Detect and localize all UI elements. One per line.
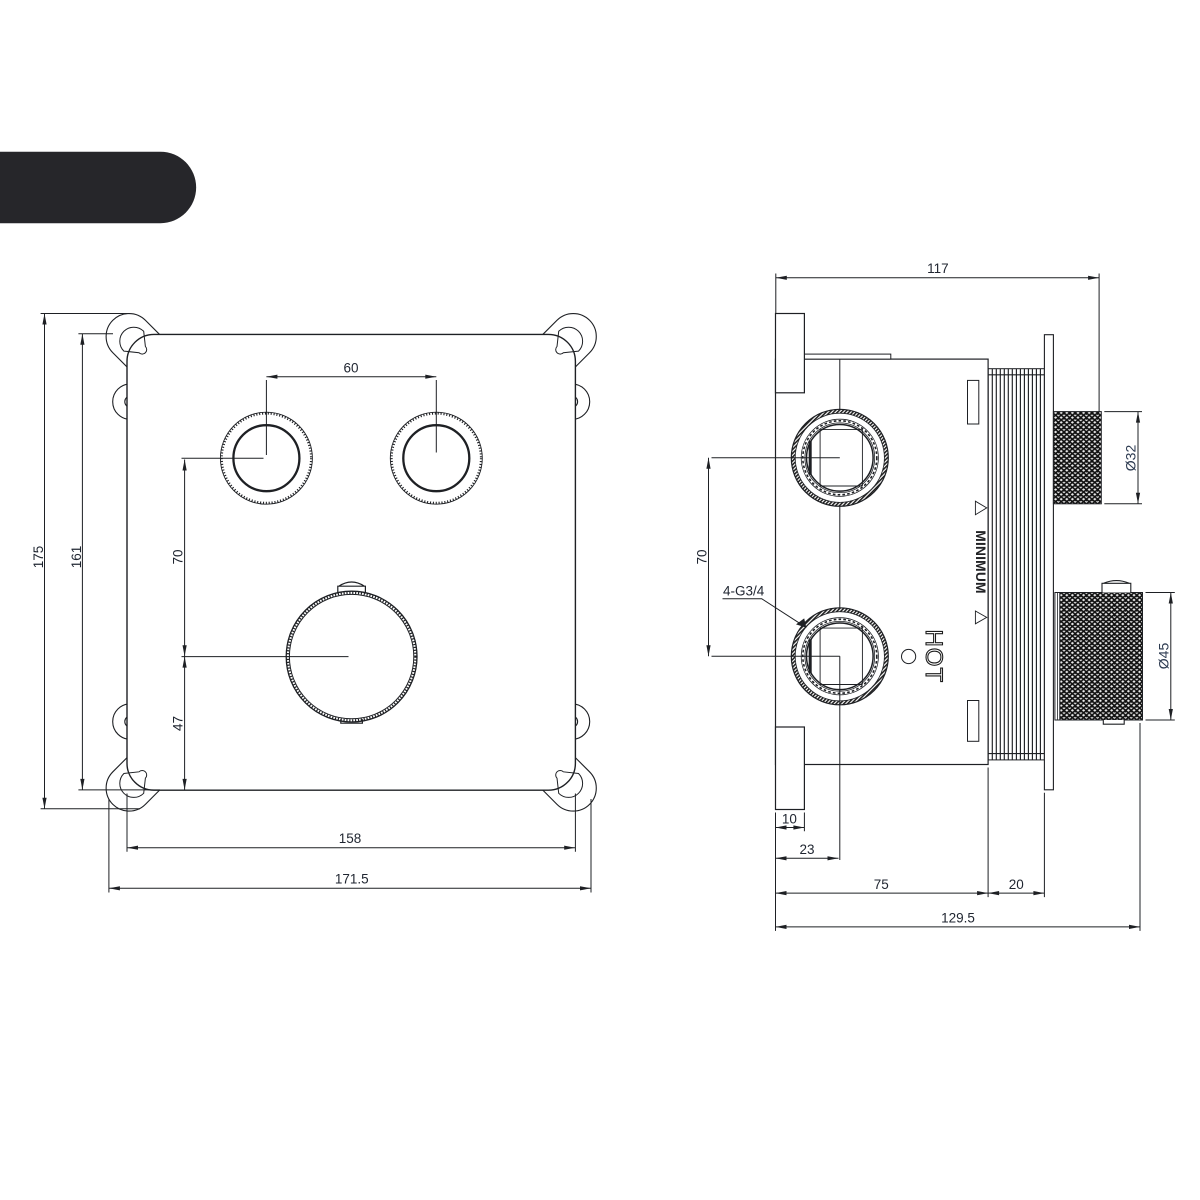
svg-text:23: 23 <box>799 842 814 857</box>
svg-text:60: 60 <box>343 361 358 376</box>
svg-text:47: 47 <box>171 716 186 731</box>
svg-text:70: 70 <box>694 549 709 564</box>
svg-text:MINIMUM: MINIMUM <box>973 530 988 593</box>
svg-text:70: 70 <box>171 549 186 564</box>
svg-text:20: 20 <box>1009 877 1024 892</box>
svg-text:10: 10 <box>782 812 797 827</box>
svg-text:161: 161 <box>69 546 84 569</box>
svg-text:75: 75 <box>874 877 889 892</box>
svg-text:175: 175 <box>31 546 46 569</box>
svg-text:117: 117 <box>927 261 949 276</box>
svg-text:Ø32: Ø32 <box>1123 445 1139 472</box>
svg-text:Ø45: Ø45 <box>1155 643 1171 670</box>
svg-text:171.5: 171.5 <box>335 872 369 887</box>
svg-text:129.5: 129.5 <box>941 911 975 926</box>
svg-text:4-G3/4: 4-G3/4 <box>723 583 765 598</box>
svg-text:HOT: HOT <box>920 629 947 683</box>
svg-text:158: 158 <box>339 831 362 846</box>
